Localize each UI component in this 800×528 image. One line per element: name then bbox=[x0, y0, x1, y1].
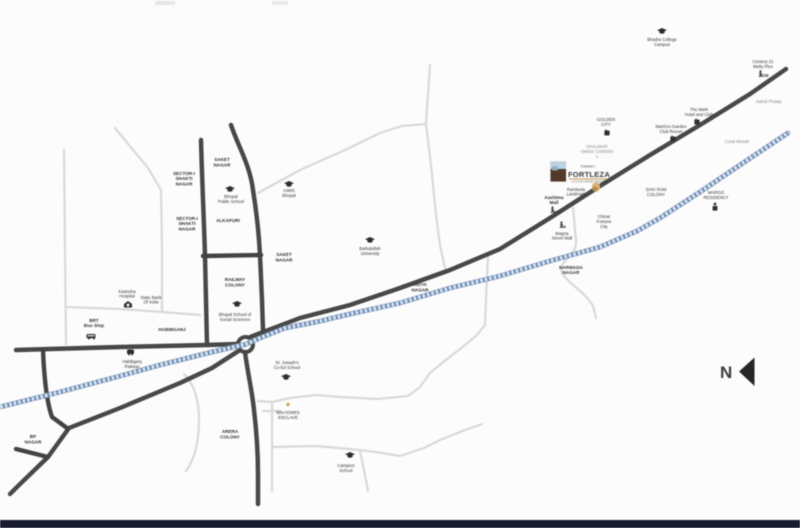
svg-text:Nahal Phatay: Nahal Phatay bbox=[756, 99, 782, 104]
svg-text:SECTOR-ISHAKTINAGAR: SECTOR-ISHAKTINAGAR bbox=[176, 216, 198, 231]
svg-text:Fortune I: Fortune I bbox=[581, 165, 595, 169]
svg-text:L U X U R Y A P A R T M E N: L U X U R Y A P A R T M E N T S bbox=[571, 180, 606, 183]
svg-text:M: M bbox=[563, 225, 566, 229]
svg-text:N: N bbox=[720, 363, 732, 382]
svg-text:KM: KM bbox=[762, 73, 769, 78]
svg-text:KM: KM bbox=[554, 209, 561, 214]
svg-text:BarkatullahUniversity: BarkatullahUniversity bbox=[359, 246, 381, 256]
svg-text:AIIMSBhopal: AIIMSBhopal bbox=[282, 188, 295, 198]
svg-text:ALKAPURI: ALKAPURI bbox=[216, 218, 240, 223]
svg-text:St. Joseph'sCo-Ed School: St. Joseph'sCo-Ed School bbox=[274, 360, 301, 370]
svg-text:CampionSchool: CampionSchool bbox=[337, 463, 355, 473]
svg-text:SHIV RAMCOLONY: SHIV RAMCOLONY bbox=[646, 187, 667, 197]
svg-text:RamleelaLandmark: RamleelaLandmark bbox=[566, 187, 586, 197]
svg-text:HABIBGANJ: HABIBGANJ bbox=[158, 327, 186, 332]
svg-text:HabibganjRailway: HabibganjRailway bbox=[122, 359, 141, 369]
svg-text:RAILWAYCOLONY: RAILWAYCOLONY bbox=[225, 277, 246, 287]
svg-text:SAKETNAGAR: SAKETNAGAR bbox=[214, 157, 232, 167]
svg-text:Coral Woods: Coral Woods bbox=[725, 139, 749, 144]
svg-text:VIDYANAGAR: VIDYANAGAR bbox=[412, 282, 430, 292]
svg-text:Century 21Multy Plex: Century 21Multy Plex bbox=[752, 59, 774, 69]
svg-text:ARERACOLONY: ARERACOLONY bbox=[220, 429, 240, 439]
svg-text:WILHOMESENCLAVE: WILHOMESENCLAVE bbox=[276, 410, 300, 420]
svg-text:SECTOR-ISHAKTINAGAR: SECTOR-ISHAKTINAGAR bbox=[173, 171, 195, 186]
svg-text:KasturbaHospital: KasturbaHospital bbox=[118, 289, 136, 299]
svg-text:SAKETNAGAR: SAKETNAGAR bbox=[276, 252, 294, 262]
svg-text:FORTLEZA: FORTLEZA bbox=[568, 170, 610, 179]
svg-text:Bhopal School ofSocial Science: Bhopal School ofSocial Sciences bbox=[219, 312, 252, 322]
